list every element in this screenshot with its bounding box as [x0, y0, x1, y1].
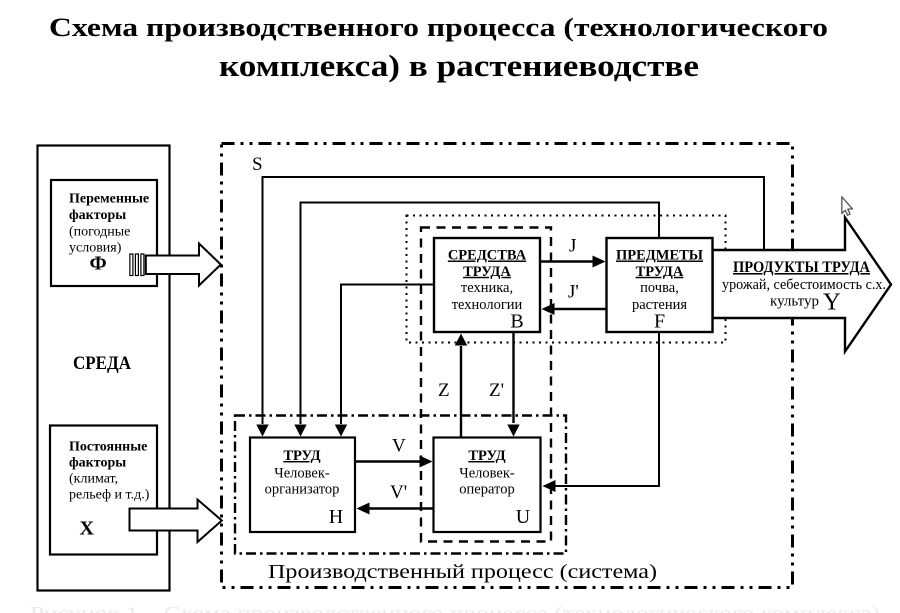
svg-text:X: X: [80, 518, 95, 540]
svg-text:Z': Z': [489, 380, 504, 401]
svg-text:ТРУДА: ТРУДА: [636, 264, 684, 280]
svg-text:ТРУДА: ТРУДА: [463, 264, 511, 280]
svg-text:B: B: [510, 311, 523, 333]
svg-text:V': V': [390, 482, 407, 503]
svg-text:Ф: Ф: [90, 253, 107, 275]
svg-text:СРЕДА: СРЕДА: [73, 353, 131, 374]
svg-text:культур: культур: [770, 294, 819, 310]
svg-text:Постоянные: Постоянные: [69, 440, 147, 455]
svg-text:Схема производственного процес: Схема производственного процесса (технол…: [49, 13, 828, 42]
svg-text:Человек-: Человек-: [459, 466, 515, 482]
svg-text:J: J: [569, 236, 576, 257]
svg-text:(погодные: (погодные: [69, 225, 130, 240]
svg-text:(климат,: (климат,: [69, 472, 118, 487]
svg-text:Н: Н: [329, 506, 343, 528]
svg-text:организатор: организатор: [265, 482, 340, 498]
svg-text:почва,: почва,: [640, 280, 679, 296]
svg-text:ТРУД: ТРУД: [468, 448, 505, 464]
svg-text:комплекса) в растениеводстве: комплекса) в растениеводстве: [219, 48, 699, 83]
svg-text:ПРЕДМЕТЫ: ПРЕДМЕТЫ: [616, 248, 703, 264]
svg-text:СРЕДСТВА: СРЕДСТВА: [448, 248, 527, 264]
svg-text:техника,: техника,: [461, 280, 513, 296]
svg-text:F: F: [654, 311, 665, 333]
svg-text:Рисунок 1 – Схема производстве: Рисунок 1 – Схема производственного проц…: [30, 603, 880, 613]
svg-text:Y: Y: [823, 289, 841, 316]
svg-text:факторы: факторы: [69, 456, 126, 471]
svg-text:Z: Z: [438, 380, 450, 401]
svg-text:V: V: [392, 436, 406, 457]
svg-text:ТРУД: ТРУД: [283, 448, 320, 464]
svg-text:ПРОДУКТЫ ТРУДА: ПРОДУКТЫ ТРУДА: [733, 259, 871, 276]
svg-text:J': J': [568, 282, 579, 303]
svg-text:Переменные: Переменные: [69, 192, 149, 207]
svg-text:Производственный процесс (сист: Производственный процесс (система): [268, 561, 657, 583]
svg-text:оператор: оператор: [459, 482, 514, 498]
svg-text:U: U: [516, 506, 531, 528]
svg-text:Человек-: Человек-: [274, 466, 330, 482]
svg-text:урожай, себестоимость с.х.: урожай, себестоимость с.х.: [722, 277, 886, 293]
svg-text:рельеф и т.д.): рельеф и т.д.): [69, 488, 150, 503]
svg-text:S: S: [252, 154, 263, 175]
svg-text:факторы: факторы: [69, 208, 126, 223]
